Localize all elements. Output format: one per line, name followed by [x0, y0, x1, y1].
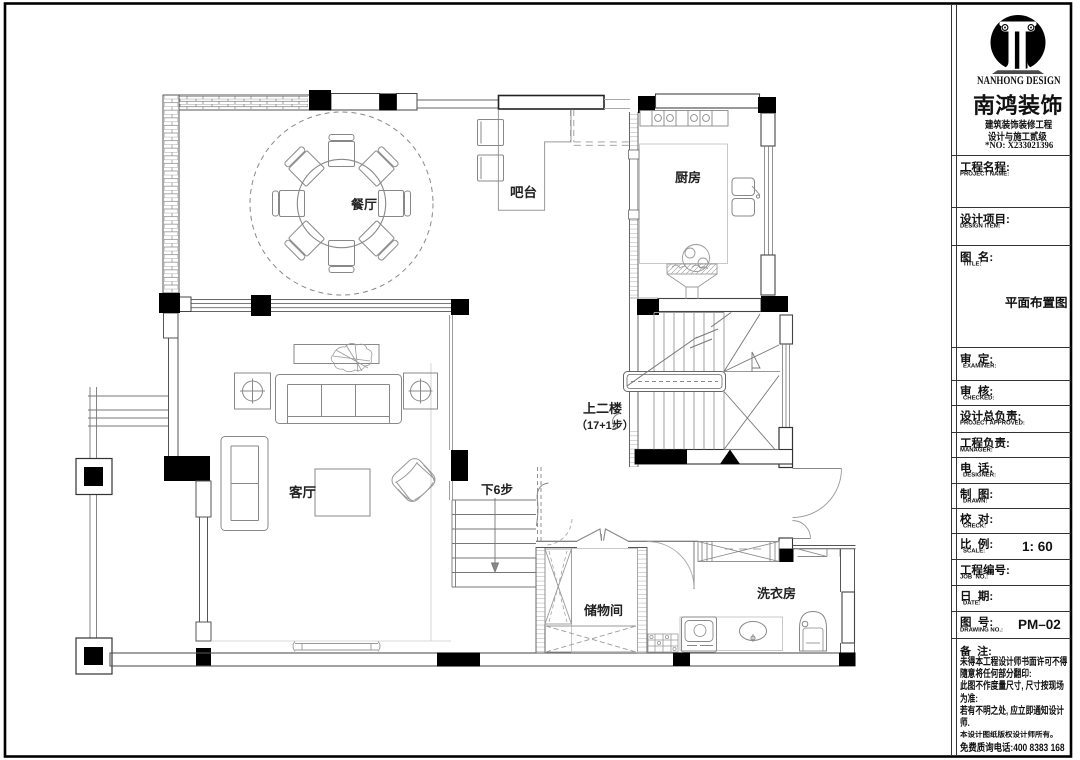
svg-text:下6步: 下6步: [481, 483, 513, 497]
svg-text:餐厅: 餐厅: [350, 197, 377, 212]
svg-text:（17+1步）: （17+1步）: [576, 419, 634, 432]
svg-text:厨房: 厨房: [675, 170, 701, 185]
svg-text:储物间: 储物间: [584, 603, 623, 618]
svg-text:洗衣房: 洗衣房: [757, 586, 796, 601]
svg-text:上二楼: 上二楼: [583, 401, 622, 416]
svg-text:客厅: 客厅: [288, 485, 316, 500]
svg-text:吧台: 吧台: [510, 185, 537, 200]
